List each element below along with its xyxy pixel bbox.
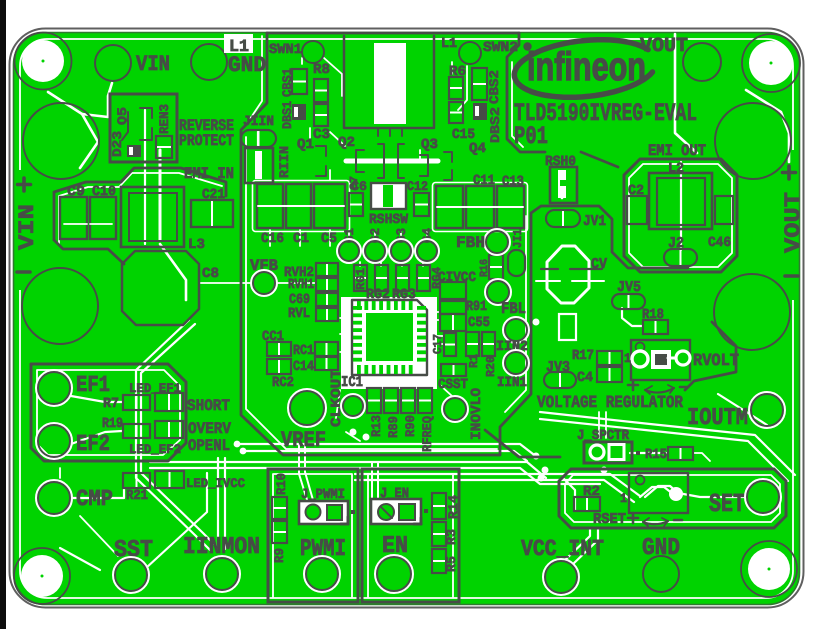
svg-text:1: 1	[620, 491, 627, 506]
svg-text:Q2: Q2	[338, 135, 355, 151]
svg-text:R17: R17	[572, 348, 594, 364]
svg-text:SWN1: SWN1	[269, 42, 302, 58]
svg-text:RFREQ: RFREQ	[420, 416, 435, 452]
svg-text:RIIN: RIIN	[277, 146, 292, 178]
svg-text:R9: R9	[272, 548, 287, 563]
svg-text:JIIN: JIIN	[243, 114, 274, 130]
svg-text:Q4: Q4	[469, 141, 486, 157]
svg-text:JI1: JI1	[511, 229, 525, 248]
svg-text:R3: R3	[444, 529, 459, 545]
svg-text:FBH: FBH	[456, 234, 485, 252]
svg-text:RC2: RC2	[272, 375, 294, 391]
svg-text:VIN: VIN	[15, 204, 40, 250]
svg-text:RSH0: RSH0	[545, 154, 576, 170]
svg-text:CBS2: CBS2	[487, 70, 502, 104]
svg-text:EF2: EF2	[76, 431, 110, 457]
svg-text:R20: R20	[484, 356, 498, 377]
svg-text:SWN2: SWN2	[483, 40, 518, 56]
svg-text:CSST: CSST	[438, 377, 468, 393]
svg-text:VOUT: VOUT	[781, 192, 806, 253]
svg-text:R21: R21	[126, 488, 148, 504]
svg-text:C46: C46	[708, 235, 731, 251]
svg-text:R5: R5	[444, 556, 459, 572]
svg-text:SHORT: SHORT	[187, 397, 230, 415]
svg-text:CMP: CMP	[76, 486, 113, 512]
svg-text:L1: L1	[441, 36, 457, 52]
svg-text:R19: R19	[102, 416, 123, 432]
svg-text:IOUTM: IOUTM	[687, 405, 748, 432]
svg-text:PROTECT: PROTECT	[179, 132, 234, 150]
svg-text:VOLTAGE REGULATOR: VOLTAGE REGULATOR	[537, 394, 684, 413]
svg-text:RG2: RG2	[366, 287, 390, 303]
svg-text:RG3: RG3	[392, 287, 416, 303]
svg-text:RSHSW: RSHSW	[369, 212, 409, 228]
svg-text:LED_IVCC: LED_IVCC	[186, 476, 245, 491]
svg-text:R14: R14	[446, 495, 461, 519]
svg-text:C4: C4	[577, 370, 593, 386]
svg-text:R15: R15	[645, 447, 667, 463]
svg-text:RVH1: RVH1	[288, 277, 314, 293]
svg-text:FBL: FBL	[501, 300, 526, 318]
svg-text:DBS1: DBS1	[280, 101, 295, 129]
svg-text:R16: R16	[479, 259, 491, 277]
svg-text:RSET: RSET	[593, 511, 626, 528]
svg-text:R1: R1	[467, 354, 481, 368]
svg-text:R10: R10	[274, 473, 289, 495]
svg-text:CV: CV	[591, 256, 607, 273]
svg-text:C12: C12	[407, 179, 428, 194]
svg-text:EMI IN: EMI IN	[184, 165, 234, 183]
svg-text:Q3: Q3	[421, 137, 438, 153]
svg-text:R89: R89	[386, 416, 401, 438]
svg-text:EF1: EF1	[76, 372, 110, 398]
svg-text:R8: R8	[313, 62, 330, 78]
svg-text:C8: C8	[202, 266, 219, 282]
svg-text:LED_EF2: LED_EF2	[129, 442, 181, 457]
svg-text:1: 1	[624, 351, 631, 366]
svg-text:GND: GND	[642, 535, 680, 562]
svg-text:C5: C5	[321, 231, 337, 247]
svg-text:infineon: infineon	[527, 45, 646, 89]
svg-text:R13: R13	[369, 415, 384, 437]
svg-text:DBS2: DBS2	[488, 107, 503, 143]
svg-text:C6: C6	[351, 179, 367, 194]
svg-text:R90: R90	[403, 415, 418, 437]
svg-text:IIN1: IIN1	[497, 375, 527, 391]
svg-text:C17: C17	[431, 334, 445, 354]
svg-text:C15: C15	[452, 127, 475, 143]
svg-text:RVOLT: RVOLT	[693, 352, 739, 371]
svg-text:C55: C55	[468, 315, 490, 331]
svg-text:L3: L3	[188, 237, 205, 253]
svg-text:VREF: VREF	[281, 428, 326, 453]
svg-text:R7: R7	[103, 396, 119, 412]
svg-text:D23: D23	[110, 131, 125, 157]
svg-text:C11: C11	[473, 173, 495, 189]
svg-text:R91: R91	[466, 299, 487, 315]
svg-text:L2: L2	[668, 161, 684, 177]
svg-text:JV1: JV1	[583, 213, 606, 230]
svg-text:C3: C3	[313, 127, 330, 143]
svg-text:P01: P01	[514, 122, 548, 151]
svg-text:INOVLO: INOVLO	[469, 388, 485, 440]
svg-text:Q1: Q1	[297, 137, 314, 153]
svg-text:EMI OUT: EMI OUT	[648, 142, 706, 160]
svg-text:RC1: RC1	[293, 343, 314, 359]
svg-text:C16: C16	[261, 231, 284, 247]
svg-text:SET: SET	[709, 489, 745, 519]
svg-text:CIVCC: CIVCC	[438, 270, 477, 286]
svg-text:CLKOUT: CLKOUT	[329, 369, 345, 427]
svg-text:VIN: VIN	[136, 52, 170, 77]
svg-text:C13: C13	[502, 174, 524, 190]
svg-text:C14: C14	[293, 359, 314, 375]
svg-text:L1: L1	[229, 38, 249, 57]
svg-text:REN3: REN3	[157, 104, 172, 134]
svg-text:RVL: RVL	[288, 306, 310, 322]
svg-text:C1: C1	[293, 231, 309, 247]
svg-text:OPENL: OPENL	[188, 437, 230, 455]
svg-text:OVERV: OVERV	[188, 420, 231, 438]
